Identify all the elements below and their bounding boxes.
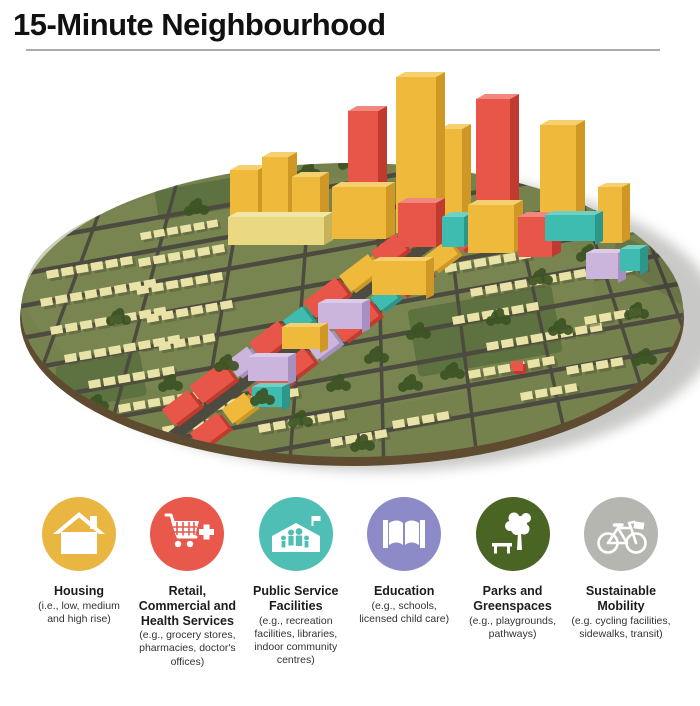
legend-item-education: Education (e.g., schools, licensed child… [353, 496, 455, 669]
legend-item-public-service: Public Service Facilities (e.g., recreat… [245, 496, 347, 669]
legend-sublabel: (i.e., low, medium and high rise) [28, 600, 130, 626]
header: 15-Minute Neighbourhood [0, 0, 700, 51]
title-divider [26, 49, 660, 51]
legend-item-parks-greenspaces: Parks and Greenspaces (e.g., playgrounds… [462, 496, 564, 669]
legend-item-housing: Housing (i.e., low, medium and high rise… [28, 496, 130, 669]
legend-sublabel: (e.g., recreation facilities, libraries,… [245, 615, 347, 668]
legend-sublabel: (e.g. cycling facilities, sidewalks, tra… [570, 615, 672, 641]
legend-sublabel: (e.g., schools, licensed child care) [353, 600, 455, 626]
infographic-page: 15-Minute Neighbourhood [0, 0, 700, 706]
community-centre-icon [258, 496, 334, 572]
legend-item-retail-commercial-health: Retail, Commercial and Health Services (… [136, 496, 238, 669]
house-icon [41, 496, 117, 572]
legend-sublabel: (e.g., grocery stores, pharmacies, docto… [136, 629, 238, 668]
legend-label: Sustainable Mobility [570, 584, 672, 614]
legend-label: Education [374, 584, 434, 599]
tree-bench-icon [475, 496, 551, 572]
page-title: 15-Minute Neighbourhood [13, 8, 700, 42]
legend-label: Retail, Commercial and Health Services [136, 584, 238, 628]
legend-sublabel: (e.g., playgrounds, pathways) [462, 615, 564, 641]
neighbourhood-3d-model [0, 65, 700, 485]
shopping-cart-plus-icon [149, 496, 225, 572]
bicycle-icon [583, 496, 659, 572]
legend-label: Parks and Greenspaces [462, 584, 564, 614]
neighbourhood-model-figure [0, 65, 700, 490]
legend: Housing (i.e., low, medium and high rise… [0, 496, 700, 669]
legend-label: Public Service Facilities [245, 584, 347, 614]
open-book-icon [366, 496, 442, 572]
legend-label: Housing [54, 584, 104, 599]
legend-item-sustainable-mobility: Sustainable Mobility (e.g. cycling facil… [570, 496, 672, 669]
